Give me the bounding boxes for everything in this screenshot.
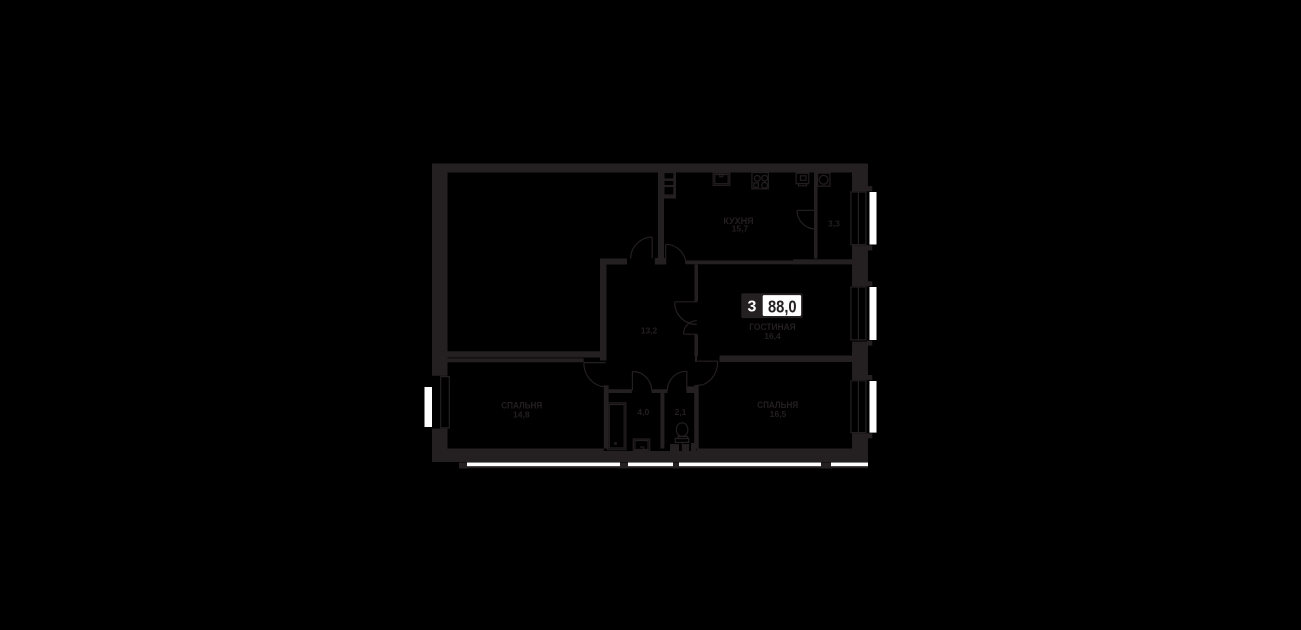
svg-text:2,1: 2,1 (675, 407, 687, 417)
svg-text:15,7: 15,7 (732, 224, 749, 234)
svg-text:88,0: 88,0 (768, 297, 797, 316)
svg-text:13,2: 13,2 (641, 325, 658, 335)
svg-text:16,4: 16,4 (764, 331, 781, 341)
svg-text:14,8: 14,8 (513, 410, 530, 420)
svg-text:3: 3 (748, 299, 757, 316)
svg-text:16,5: 16,5 (770, 409, 787, 419)
svg-text:4,0: 4,0 (637, 407, 649, 417)
svg-text:3,3: 3,3 (828, 218, 840, 228)
